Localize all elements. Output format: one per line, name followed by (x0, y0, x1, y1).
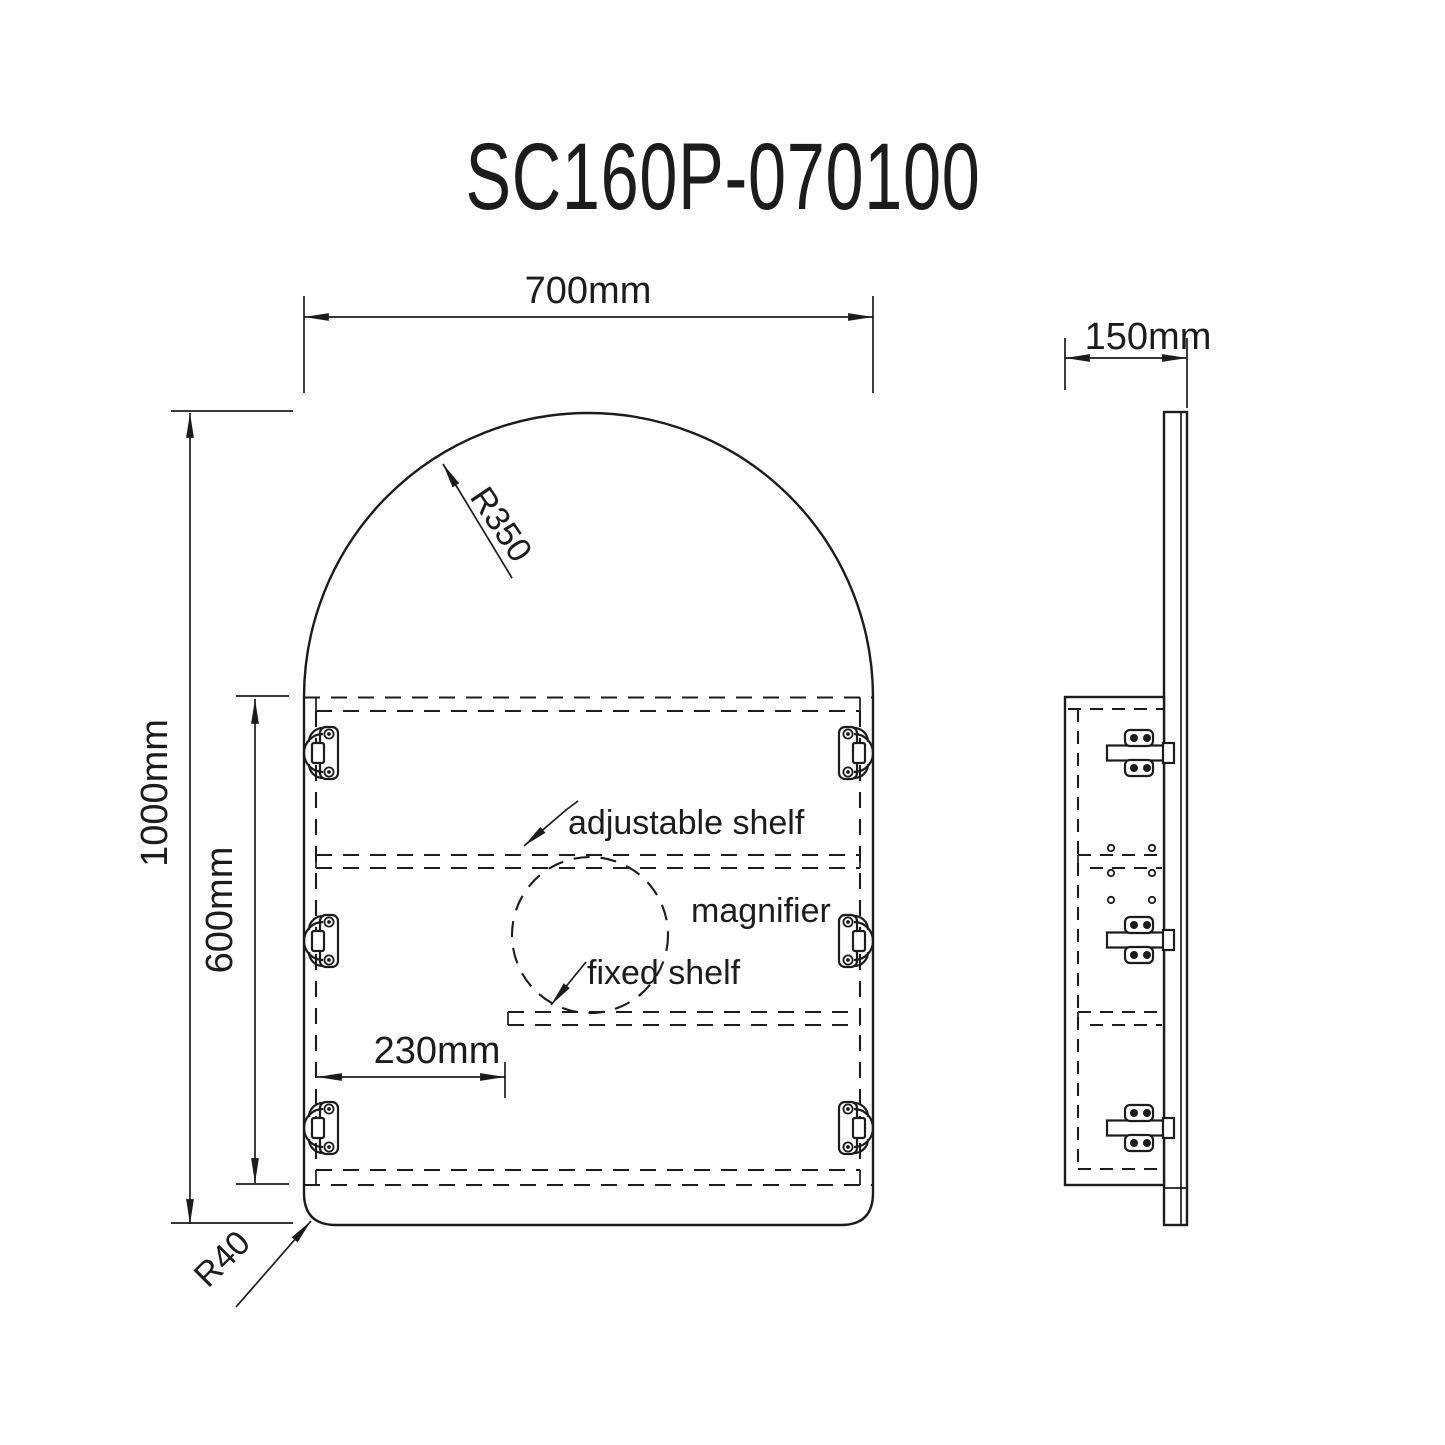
cabinet-drawing: SC160P-070100 (0, 0, 1445, 1445)
depth-dimension-label: 150mm (1085, 316, 1212, 358)
front-view: 700mm 1000mm 600mm 230mm R350 R40 (134, 270, 873, 1307)
technical-drawing-page: SC160P-070100 (0, 0, 1445, 1445)
depth-dimension: 150mm (1065, 316, 1211, 408)
width-dimension: 700mm (304, 270, 873, 393)
door-panel (1164, 412, 1187, 1225)
interior-height-dimension-label: 600mm (199, 847, 241, 974)
height-dimension: 1000mm (134, 411, 293, 1224)
fixed-shelf-label: fixed shelf (587, 954, 741, 992)
width-dimension-label: 700mm (525, 270, 652, 312)
corner-radius-callout: R40 (187, 1221, 311, 1307)
drawing-title: SC160P-070100 (465, 123, 980, 230)
magnifier-label: magnifier (691, 892, 831, 930)
adjustable-shelf-label: adjustable shelf (568, 804, 805, 842)
side-view: 150mm (1065, 316, 1211, 1225)
corner-radius-label: R40 (187, 1224, 258, 1295)
height-dimension-label: 1000mm (134, 719, 176, 867)
interior-height-dimension: 600mm (199, 696, 289, 1184)
shelf-offset-dimension-label: 230mm (374, 1030, 501, 1072)
